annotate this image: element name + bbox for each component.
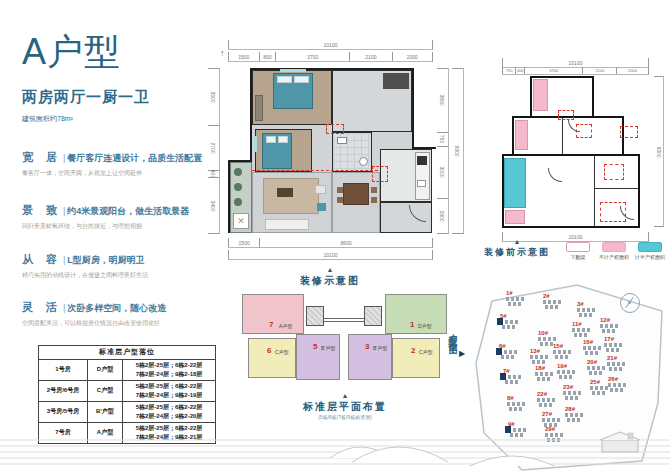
outside-area <box>228 68 252 162</box>
table-title: 标准层户型落位 <box>39 346 216 360</box>
dim-segment: 10100 <box>228 250 432 259</box>
room-second-bedroom <box>255 129 312 172</box>
building-cluster <box>542 418 560 422</box>
building-cluster <box>604 343 622 347</box>
room-master-bedroom <box>252 70 332 125</box>
unit-type: A户型 <box>279 323 292 329</box>
feature-item: 景致|约4米景观阳台，做生活取景器 回归美景鲜氧环绕，与自然接近，与理想相拥 <box>22 203 190 231</box>
pillows <box>266 136 288 143</box>
dim-label: 10100 <box>324 252 338 259</box>
building-cluster <box>577 308 595 312</box>
floors-cell: 5栋2层-25层；6栋2-22层7栋2层-24层；9栋2-20层 <box>123 401 216 422</box>
dim-label: 750 <box>439 135 445 143</box>
dim-label: 3650 <box>439 95 445 106</box>
armchair-icon <box>315 185 326 194</box>
building-label: 11# <box>572 321 594 327</box>
outline-dim-right-total: 9300 <box>654 76 664 227</box>
divider: | <box>63 153 65 163</box>
corridor-bridge <box>324 318 364 322</box>
plant-icon <box>234 168 242 176</box>
dim-segment: 3650 <box>437 68 448 132</box>
plate-unit: 7 A户型 <box>242 294 304 334</box>
half-property-area <box>504 158 526 208</box>
balcony: ✕ <box>230 162 252 233</box>
building-cluster <box>607 362 625 366</box>
building-label: 2# <box>543 293 565 299</box>
accent-chair-icon <box>317 203 326 211</box>
building-label: 27# <box>542 411 564 417</box>
building-label: 17# <box>604 336 626 342</box>
feature-headline: 从容|L型厨房，明厨明卫 <box>22 252 190 267</box>
basin-icon <box>337 137 347 144</box>
chair-icon <box>371 187 377 193</box>
highlight-chip <box>497 318 503 325</box>
type-cell: B'户型 <box>88 401 123 422</box>
dim-segment: 9300 <box>452 68 463 233</box>
unit-number: 5 <box>313 343 317 351</box>
site-building: 11# <box>572 321 594 332</box>
building-label: 6# <box>499 343 521 349</box>
feature-desc: 回归美景鲜氧环绕，与自然接近，与理想相拥 <box>22 222 190 231</box>
north-arrow-icon: ↑ <box>220 48 225 58</box>
caption-text: 装修前示意图 <box>480 246 554 259</box>
building-cluster <box>507 402 525 406</box>
dim-segment: 400 <box>515 67 524 74</box>
building-label: 3# <box>577 301 599 307</box>
dim-label: 8600 <box>341 240 352 247</box>
building-cluster <box>506 297 524 301</box>
cooktop-icon <box>417 156 427 165</box>
dim-label: 3500 <box>210 92 216 103</box>
page-title: A户型 <box>22 28 121 77</box>
site-building-highlighted: 7# <box>503 368 525 379</box>
highlight-chip <box>496 348 502 355</box>
dim-top-total: 10100 <box>228 40 433 50</box>
legend-item: 不计产权面积 <box>594 242 634 260</box>
unit-type: C户型 <box>275 349 289 355</box>
floors-line2: 7栋2层-24层；9栋2-20层 <box>136 413 203 419</box>
dim-label: 1900 <box>439 211 445 222</box>
dim-segment: 1500 <box>228 52 259 61</box>
triangle-up-icon: ▲ <box>480 238 554 246</box>
building-label: 7# <box>503 368 525 374</box>
interior-wall <box>594 188 638 189</box>
non-property-area <box>515 120 528 150</box>
site-building: 21# <box>607 355 629 366</box>
floors-line1: 5栋2层-25层；6栋2-22层 <box>136 383 203 389</box>
building-label: 5# <box>500 313 522 319</box>
building-label: 16# <box>583 339 605 345</box>
coffee-table-icon <box>277 188 293 197</box>
interior-wall <box>562 118 563 154</box>
dim-label: 1500 <box>239 240 250 247</box>
table-row: 2号房/6号房 C户型 5栋2层-25层；6栋2-22层7栋2层-24层；9栋2… <box>39 380 216 401</box>
building-label: 1# <box>506 290 528 296</box>
dim-label: 3700 <box>549 67 558 74</box>
beam-dashed-outline <box>620 126 638 138</box>
room-hallway <box>332 70 412 132</box>
triangle-up-icon: ▲ <box>275 392 415 400</box>
unit-number: 1 <box>410 321 414 329</box>
floors-cell: 5栋2层-25层；6栋2-22层7栋2层-24层；9栋2-18层 <box>123 359 216 380</box>
caption-text: 装修示意图 <box>270 274 390 288</box>
building-cluster <box>587 366 605 370</box>
dim-segment: 9300 <box>654 76 663 226</box>
building-cluster <box>543 300 561 304</box>
site-map-label: 户型落位图 <box>446 326 459 341</box>
floors-line1: 5栋2层-25层；6栋2-22层 <box>136 404 203 410</box>
bed-icon <box>273 73 313 109</box>
site-building: 23# <box>563 384 585 395</box>
building-cluster <box>535 372 553 376</box>
building-label: 21# <box>607 355 629 361</box>
dim-segment: 2100 <box>582 67 616 74</box>
dim-segment: 3700 <box>275 52 349 61</box>
dim-top-segments: 1500 800 3700 2100 2000 <box>228 52 433 62</box>
building-label: 15# <box>553 343 575 349</box>
beam-dashed-outline <box>372 166 388 182</box>
window-icon <box>254 136 257 152</box>
unit-number: 2 <box>411 347 415 355</box>
room-bathroom <box>332 132 372 172</box>
floors-line1: 5栋2层-25层；6栋2-22层 <box>136 362 203 368</box>
room-living <box>252 172 332 233</box>
legend-swatch <box>638 242 662 252</box>
legend-item: 下翻梁 <box>558 242 598 260</box>
building-cluster <box>537 398 555 402</box>
sofa-icon <box>265 219 309 230</box>
dim-label: 3000 <box>439 167 445 178</box>
room-cell: 3号房/5号房 <box>39 401 88 422</box>
building-cluster <box>500 320 518 324</box>
dim-bottom-total: 10100 <box>228 250 433 260</box>
divider: | <box>63 303 65 313</box>
dim-label: 10100 <box>569 234 583 241</box>
dim-right-total: 9300 <box>452 68 464 234</box>
dim-segment: 2000 <box>616 67 648 74</box>
site-building: 22# <box>537 391 559 402</box>
dim-segment: 750 <box>502 67 515 74</box>
dim-segment: 1900 <box>437 198 448 233</box>
room-cell: 2号房/6号房 <box>39 380 88 401</box>
beam-dashed-line <box>252 170 378 171</box>
dim-segment: 2700 <box>208 125 219 169</box>
table-row: 1号房 D户型 5栋2层-25层；6栋2-22层7栋2层-24层；9栋2-18层 <box>39 359 216 380</box>
highlight-chip <box>505 426 511 433</box>
feature-headline: 宽居|餐厅客厅连通设计，品质生活配置 <box>22 150 190 165</box>
site-building: 3# <box>577 301 599 312</box>
beam-dashed-outline <box>558 110 574 120</box>
mat-icon: ✕ <box>233 213 249 229</box>
floors-line2: 7栋2层-24层；9栋2-19层 <box>136 392 203 398</box>
feature-item: 宽居|餐厅客厅连通设计，品质生活配置 餐客厅一体，空间开阔，从视觉上让空间延伸 <box>22 150 190 178</box>
plate-unit: 5 B'户型 <box>296 334 340 380</box>
legend-swatch <box>602 242 626 252</box>
dim-left-segments: 3500 2700 400 3400 <box>208 68 220 234</box>
chair-icon <box>337 187 343 193</box>
site-building: 19# <box>557 363 579 374</box>
dim-segment: 2100 <box>349 52 391 61</box>
building-cluster <box>553 350 571 354</box>
outline-plan <box>502 76 648 234</box>
plant-icon <box>234 198 242 206</box>
dim-label: 2000 <box>628 67 637 74</box>
outside-area <box>412 68 436 149</box>
building-label: 22# <box>537 391 559 397</box>
site-building: 12# <box>600 317 622 328</box>
site-building: 1# <box>506 290 528 301</box>
dim-label: 10100 <box>569 60 583 67</box>
dim-label: 9300 <box>454 145 460 156</box>
room-cell: 1号房 <box>39 359 88 380</box>
floor-plate-caption: ▲ 标准层平面布置 (5栋/6栋/7栋/9栋标准层) <box>275 392 415 420</box>
site-building: 18# <box>535 365 557 376</box>
building-cluster <box>563 391 581 395</box>
divider: | <box>63 206 65 216</box>
dim-bottom-segments: 1500 8600 <box>228 238 433 248</box>
building-label: 10# <box>538 330 560 336</box>
bed-icon <box>262 133 292 169</box>
caption-text: 标准层平面布置 <box>275 400 415 414</box>
plate-unit: 3 B'户型 <box>348 334 392 380</box>
building-label: 12# <box>600 317 622 323</box>
site-building: 17# <box>604 336 626 347</box>
floors-line2: 7栋2层-24层；9栋2-18层 <box>136 371 203 377</box>
dim-segment: 400 <box>208 170 219 177</box>
building-cluster <box>499 350 517 354</box>
dim-segment: 2000 <box>392 52 432 61</box>
building-cluster <box>503 375 521 379</box>
site-building: 2# <box>543 293 565 304</box>
feature-headline-text: 次卧多样空间，随心改造 <box>67 303 166 313</box>
main-floor-plan: ✕ <box>228 68 432 233</box>
dim-label: 10100 <box>324 42 338 49</box>
building-cluster <box>557 370 575 374</box>
dim-segment: 1500 <box>228 238 259 247</box>
building-label: 8# <box>507 395 529 401</box>
pillows <box>277 76 309 83</box>
feature-headline: 景致|约4米景观阳台，做生活取景器 <box>22 203 190 218</box>
building-cluster <box>590 386 608 390</box>
floors-cell: 5栋2层-25层；6栋2-22层7栋2层-24层；9栋2-19层 <box>123 380 216 401</box>
building-label: 13# <box>530 348 552 354</box>
legend-swatch <box>566 242 590 252</box>
building-cluster <box>538 337 556 341</box>
legend-label: 下翻梁 <box>558 254 598 260</box>
plate-unit: 6 C户型 <box>248 338 296 378</box>
unit-number: 7 <box>269 321 273 329</box>
unit-number: 6 <box>267 347 271 355</box>
building-label: 28# <box>565 406 587 412</box>
dim-label: 2100 <box>365 54 376 61</box>
legend-label: 不计产权面积 <box>594 254 634 260</box>
beam-dashed-outline <box>604 164 624 180</box>
site-building: 27# <box>542 411 564 422</box>
site-building-highlighted: 5# <box>500 313 522 324</box>
building-label: 26# <box>608 376 630 382</box>
feature-headline-text: 餐厅客厅连通设计，品质生活配置 <box>67 153 202 163</box>
building-label: 20# <box>587 359 609 365</box>
building-cluster <box>572 328 590 332</box>
dim-label: 2700 <box>210 143 216 154</box>
sink-icon <box>417 180 426 187</box>
building-cluster <box>600 324 618 328</box>
type-cell: C户型 <box>88 380 123 401</box>
floor-plate: 7 A户型 1 D户型 6 C户型 5 B'户型 3 B'户型 2 C户型 <box>242 292 447 384</box>
compass-icon <box>620 293 640 313</box>
building-cluster <box>565 413 583 417</box>
plate-unit: 1 D户型 <box>385 294 447 334</box>
unit-subtitle: 两房两厅一厨一卫 <box>22 88 150 107</box>
legend-item: 计半产权面积 <box>630 242 670 260</box>
type-cell: D户型 <box>88 359 123 380</box>
feature-headline-text: 约4米景观阳台，做生活取景器 <box>67 206 189 216</box>
building-cluster <box>583 346 601 350</box>
feature-headline: 灵活|次卧多样空间，随心改造 <box>22 300 190 315</box>
feature-desc: 餐客厅一体，空间开阔，从视觉上让空间延伸 <box>22 169 190 178</box>
dim-label: 9300 <box>656 146 662 157</box>
beam-dashed-outline <box>326 124 344 134</box>
dim-segment: 3700 <box>524 67 582 74</box>
main-plan-caption: ▲ 装修示意图 <box>270 266 390 288</box>
feature-headline-text: L型厨房，明厨明卫 <box>67 255 145 265</box>
dim-segment: 800 <box>259 52 276 61</box>
unit-type: B'户型 <box>321 345 335 351</box>
site-building: 16# <box>583 339 605 350</box>
dim-segment: 3000 <box>437 146 448 199</box>
dim-segment: 3400 <box>208 177 219 233</box>
caption-subtext: (5栋/6栋/7栋/9栋标准层) <box>275 414 415 420</box>
building-label: 19# <box>557 363 579 369</box>
dim-label: 2100 <box>595 67 604 74</box>
unit-table: 标准层户型落位 1号房 D户型 5栋2层-25层；6栋2-22层7栋2层-24层… <box>38 345 216 444</box>
area-note: 建筑面积约78m² <box>22 114 73 124</box>
chair-icon <box>371 197 377 203</box>
toilet-icon <box>359 157 368 166</box>
non-property-area <box>533 79 548 111</box>
dim-right-segments: 3650 750 3000 1900 <box>437 68 449 234</box>
dim-segment: 3500 <box>208 68 219 125</box>
outline-plan-caption: ▲ 装修前示意图 <box>480 238 554 259</box>
building-label: 18# <box>535 365 557 371</box>
site-building: 13# <box>530 348 552 359</box>
dim-label: 400 <box>517 67 524 74</box>
entry-door-arc <box>409 205 426 222</box>
feature-desc: 精巧实用的动线设计，在便捷之间料理美好生活 <box>22 271 190 280</box>
dim-label: 3400 <box>210 200 216 211</box>
window-icon <box>280 69 306 72</box>
building-label: 23# <box>563 384 585 390</box>
divider: | <box>63 255 65 265</box>
building-cluster <box>608 383 626 387</box>
dim-segment: 10100 <box>502 58 648 67</box>
storage-cabinet-icon <box>383 73 409 89</box>
site-building: 20# <box>587 359 609 370</box>
brochure-page: A户型 两房两厅一厨一卫 建筑面积约78m² 宽居|餐厅客厅连通设计，品质生活配… <box>0 0 670 475</box>
unit-number: 3 <box>365 343 369 351</box>
room-entry <box>380 202 432 233</box>
dim-label: 2000 <box>407 54 418 61</box>
plant-icon <box>234 183 242 191</box>
feature-desc: 空间搭配灵活，可以根据居住情况自由改变使用途径 <box>22 319 190 328</box>
dim-segment: 8600 <box>259 238 432 247</box>
unit-type: C户型 <box>419 349 433 355</box>
dim-segment: 750 <box>437 132 448 146</box>
elevator-core <box>364 306 382 326</box>
feature-item: 灵活|次卧多样空间，随心改造 空间搭配灵活，可以根据居住情况自由改变使用途径 <box>22 300 190 328</box>
non-property-area <box>505 210 525 224</box>
triangle-up-icon: ▲ <box>270 266 390 274</box>
wardrobe-icon <box>255 95 263 121</box>
site-building: 15# <box>553 343 575 354</box>
site-building: 10# <box>538 330 560 341</box>
dining-table-icon <box>343 183 369 205</box>
interior-wall <box>594 156 595 226</box>
dim-label: 1500 <box>238 54 249 61</box>
unit-type: D户型 <box>418 323 432 329</box>
building-cluster <box>530 355 548 359</box>
legend-label: 计半产权面积 <box>630 254 670 260</box>
dim-segment: 10100 <box>228 40 432 49</box>
elevator-core <box>306 306 324 326</box>
chair-icon <box>337 197 343 203</box>
table-row: 3号房/5号房 B'户型 5栋2层-25层；6栋2-22层7栋2层-24层；9栋… <box>39 401 216 422</box>
site-building: 26# <box>608 376 630 387</box>
outline-dim-top-segments: 750 400 3700 2100 2000 <box>502 67 649 75</box>
dim-label: 800 <box>263 54 271 61</box>
dim-label: 750 <box>506 67 513 74</box>
site-building: 28# <box>565 406 587 417</box>
footer-decoration <box>0 430 670 475</box>
plate-unit: 2 C户型 <box>392 338 440 378</box>
site-building-highlighted: 6# <box>499 343 521 354</box>
unit-type: B'户型 <box>373 345 387 351</box>
dim-label: 3700 <box>307 54 318 61</box>
site-building: 8# <box>507 395 529 406</box>
feature-item: 从容|L型厨房，明厨明卫 精巧实用的动线设计，在便捷之间料理美好生活 <box>22 252 190 280</box>
highlight-chip <box>500 373 506 380</box>
building-label: 9# <box>508 421 530 427</box>
